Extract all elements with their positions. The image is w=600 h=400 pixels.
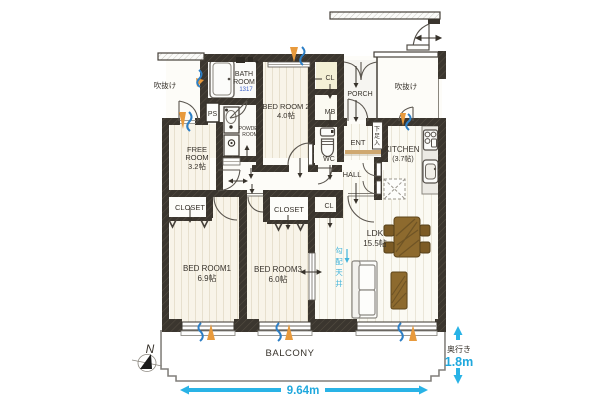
svg-text:6.9帖: 6.9帖 [197,273,216,283]
svg-text:入: 入 [374,140,380,147]
svg-text:ROOM: ROOM [242,132,258,138]
svg-text:CL: CL [326,75,335,82]
svg-text:BED ROOM1: BED ROOM1 [183,264,232,273]
svg-text:1317: 1317 [239,87,253,93]
svg-text:ENT: ENT [351,138,366,147]
svg-text:井: 井 [335,278,343,288]
svg-text:天: 天 [335,268,343,277]
svg-text:KITCHEN: KITCHEN [384,145,419,154]
svg-text:PS: PS [208,111,218,118]
svg-text:ROOM: ROOM [233,79,255,86]
svg-text:HALL: HALL [343,170,362,179]
svg-text:BED ROOM3: BED ROOM3 [254,265,303,274]
svg-text:吹抜け: 吹抜け [395,81,418,91]
svg-text:N: N [146,342,155,356]
svg-text:奥行き: 奥行き [447,344,471,354]
svg-text:1.8m: 1.8m [445,355,474,369]
svg-text:9.64m: 9.64m [287,385,320,397]
svg-text:4.0帖: 4.0帖 [277,110,295,120]
svg-text:6.0帖: 6.0帖 [268,274,287,284]
svg-text:BATH: BATH [235,71,253,78]
svg-text:下: 下 [374,126,380,133]
svg-text:15.5帖: 15.5帖 [363,238,387,248]
svg-text:CLOSET: CLOSET [274,205,304,214]
svg-text:PORCH: PORCH [347,91,372,98]
svg-text:(3.7帖): (3.7帖) [392,154,413,163]
svg-text:WC: WC [323,156,335,163]
svg-text:LDK: LDK [367,228,384,238]
svg-text:CL: CL [325,203,334,210]
svg-text:勾: 勾 [335,245,343,255]
svg-text:BALCONY: BALCONY [266,348,315,359]
svg-text:3.2帖: 3.2帖 [188,161,206,171]
svg-text:BED ROOM 2: BED ROOM 2 [262,102,309,111]
svg-text:ROOM: ROOM [185,153,208,162]
svg-text:足: 足 [374,133,380,140]
svg-text:吹抜け: 吹抜け [154,80,177,90]
svg-text:配: 配 [335,257,343,266]
